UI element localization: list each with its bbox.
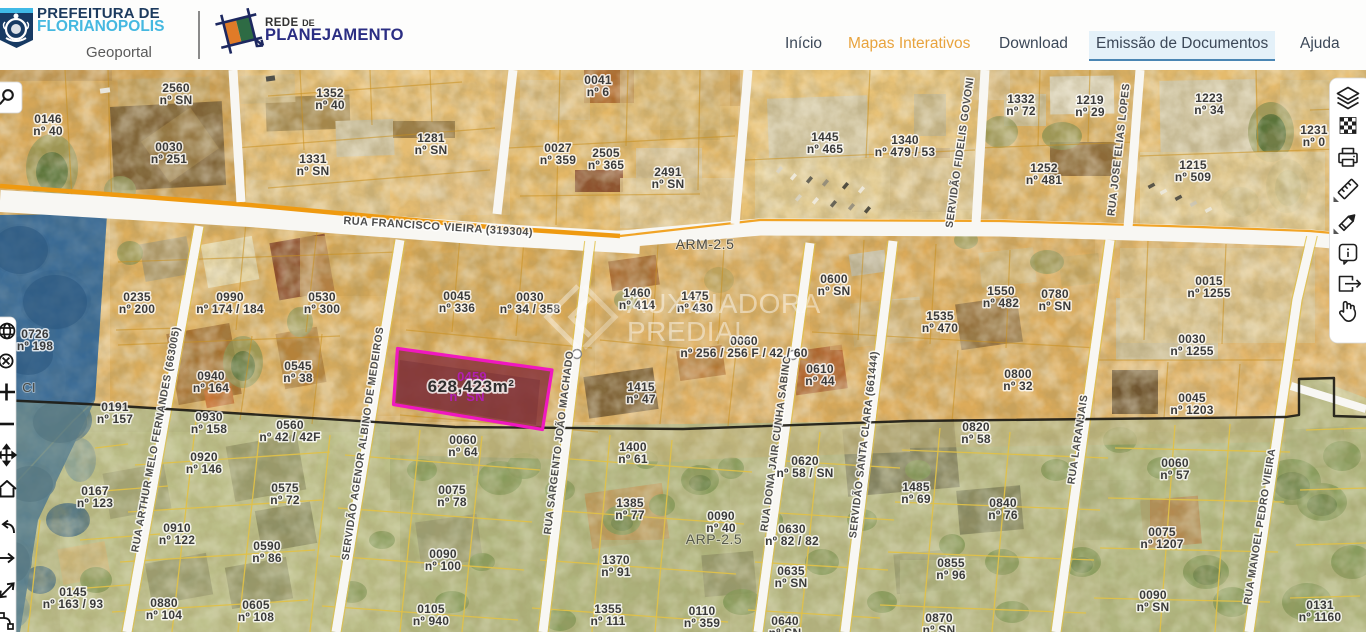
svg-text:nº 58: nº 58 [961, 432, 991, 446]
svg-text:nº 57: nº 57 [1160, 468, 1190, 482]
svg-text:nº SN: nº SN [1039, 299, 1072, 313]
svg-text:AUXILIADORA: AUXILIADORA [627, 288, 821, 319]
svg-text:nº 76: nº 76 [988, 508, 1018, 522]
svg-text:nº 72: nº 72 [1006, 104, 1036, 118]
svg-text:nº 158: nº 158 [191, 422, 227, 436]
svg-text:nº SN: nº SN [652, 177, 685, 191]
svg-text:nº 123: nº 123 [77, 496, 113, 510]
svg-text:nº 300: nº 300 [304, 302, 340, 316]
svg-text:nº 336: nº 336 [439, 301, 475, 315]
svg-text:nº 38: nº 38 [283, 371, 313, 385]
svg-text:nº 69: nº 69 [901, 492, 931, 506]
svg-text:nº 1160: nº 1160 [1299, 610, 1342, 624]
svg-text:nº 72: nº 72 [270, 493, 300, 507]
svg-text:nº SN: nº SN [1137, 600, 1170, 614]
svg-text:nº 1255: nº 1255 [1187, 286, 1230, 300]
svg-text:nº 104: nº 104 [146, 608, 182, 622]
svg-text:nº 256 / 256 F / 42 / 60: nº 256 / 256 F / 42 / 60 [680, 346, 807, 360]
svg-text:nº 77: nº 77 [615, 508, 645, 522]
svg-text:nº 359: nº 359 [540, 153, 576, 167]
svg-text:nº SN: nº SN [923, 623, 956, 632]
svg-text:nº 96: nº 96 [936, 568, 966, 582]
svg-text:nº 111: nº 111 [591, 614, 626, 628]
svg-text:nº 29: nº 29 [1075, 105, 1105, 119]
svg-text:nº 200: nº 200 [119, 302, 155, 316]
svg-text:nº 40: nº 40 [706, 521, 736, 535]
svg-text:nº 1203: nº 1203 [1170, 403, 1213, 417]
svg-text:nº 163 / 93: nº 163 / 93 [43, 597, 104, 611]
svg-text:nº 64: nº 64 [448, 445, 478, 459]
svg-text:nº 34: nº 34 [1194, 103, 1224, 117]
svg-text:nº 6: nº 6 [587, 85, 610, 99]
svg-text:nº 465: nº 465 [807, 142, 843, 156]
svg-text:nº 365: nº 365 [588, 158, 624, 172]
svg-text:nº 122: nº 122 [159, 533, 195, 547]
svg-text:nº 470: nº 470 [922, 321, 958, 335]
svg-text:nº SN: nº SN [160, 93, 193, 107]
svg-text:nº 82 / 82: nº 82 / 82 [765, 534, 819, 548]
svg-text:nº 481: nº 481 [1026, 173, 1062, 187]
svg-text:628,423m²: 628,423m² [428, 377, 515, 396]
svg-text:nº SN: nº SN [415, 143, 448, 157]
svg-text:nº 174 / 184: nº 174 / 184 [196, 302, 264, 316]
svg-text:nº 40: nº 40 [315, 98, 345, 112]
svg-text:nº 359: nº 359 [684, 616, 720, 630]
svg-text:nº 1255: nº 1255 [1170, 344, 1213, 358]
svg-text:nº 47: nº 47 [626, 392, 656, 406]
svg-text:nº 78: nº 78 [437, 495, 467, 509]
svg-text:nº 86: nº 86 [252, 551, 282, 565]
svg-text:nº 42 / 42F: nº 42 / 42F [259, 430, 320, 444]
svg-text:CI: CI [22, 380, 35, 395]
svg-text:nº 1207: nº 1207 [1140, 537, 1183, 551]
svg-text:nº 58 / SN: nº 58 / SN [776, 466, 833, 480]
svg-text:nº 251: nº 251 [151, 152, 187, 166]
svg-text:nº SN: nº SN [818, 284, 851, 298]
svg-text:nº SN: nº SN [775, 576, 808, 590]
svg-text:nº 940: nº 940 [413, 614, 449, 628]
svg-text:nº 479 / 53: nº 479 / 53 [875, 145, 936, 159]
svg-text:nº 482: nº 482 [983, 296, 1019, 310]
svg-text:nº 44: nº 44 [805, 374, 835, 388]
svg-text:nº SN: nº SN [297, 164, 330, 178]
svg-text:nº 61: nº 61 [618, 452, 648, 466]
svg-text:nº 100: nº 100 [425, 559, 461, 573]
svg-text:PREDIAL: PREDIAL [627, 316, 750, 347]
svg-text:nº 157: nº 157 [97, 412, 133, 426]
svg-text:nº 198: nº 198 [17, 339, 53, 353]
svg-text:nº SN: nº SN [769, 626, 802, 632]
svg-text:nº 108: nº 108 [238, 610, 274, 624]
svg-text:nº 40: nº 40 [33, 124, 63, 138]
svg-text:ARM-2.5: ARM-2.5 [676, 236, 735, 252]
svg-text:nº 164: nº 164 [193, 381, 229, 395]
svg-text:nº 146: nº 146 [186, 462, 222, 476]
svg-text:nº 509: nº 509 [1175, 170, 1211, 184]
svg-text:nº 0: nº 0 [1303, 135, 1326, 149]
svg-text:nº 91: nº 91 [601, 565, 631, 579]
svg-text:nº 32: nº 32 [1003, 379, 1033, 393]
